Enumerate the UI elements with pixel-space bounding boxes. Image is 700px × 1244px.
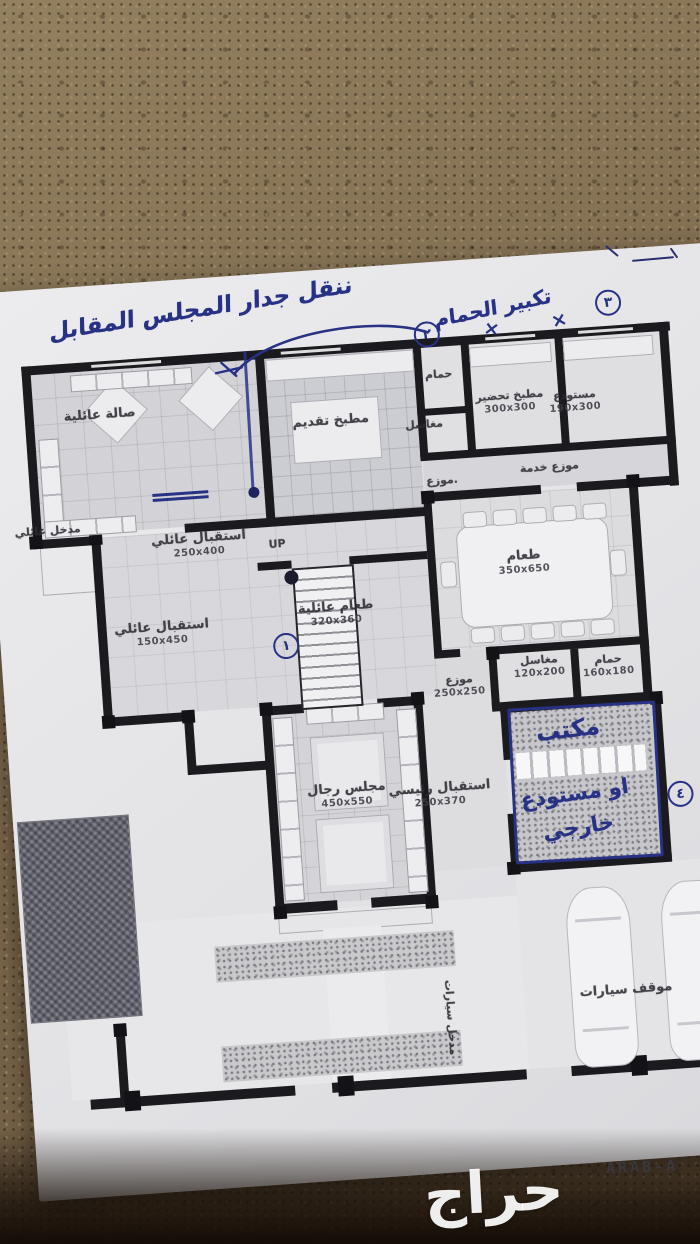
column <box>626 474 640 488</box>
x-mark: × <box>482 317 501 341</box>
wall <box>187 760 271 775</box>
chair <box>609 549 627 576</box>
floor-plan-paper: UP صالة عائلية مطبخ تقديم حمام مغاسل مطب… <box>0 242 700 1201</box>
chair <box>582 502 607 520</box>
majlis-rug <box>315 814 394 893</box>
column <box>259 702 273 716</box>
chair <box>462 511 487 529</box>
car-outline <box>564 885 640 1069</box>
chair <box>440 561 458 588</box>
chair <box>552 504 577 522</box>
chair <box>500 624 525 642</box>
column <box>102 715 116 729</box>
column <box>425 895 439 909</box>
chair <box>590 618 615 636</box>
circled-number-4: ٤ <box>667 780 695 808</box>
staircase <box>292 564 364 710</box>
entry-porch <box>40 544 99 596</box>
column <box>273 906 287 920</box>
side-garden-block <box>17 814 143 1023</box>
chair <box>492 509 517 527</box>
column <box>181 710 195 724</box>
chair <box>522 507 547 525</box>
gate-column <box>337 1075 354 1096</box>
column <box>113 1023 127 1037</box>
ink-arc <box>197 291 453 398</box>
circled-number-3: ٣ <box>594 289 622 317</box>
photo-bottom-shadow <box>0 1128 700 1244</box>
chair <box>560 620 585 638</box>
column <box>421 490 435 504</box>
haraj-watermark: حراج <box>422 1154 565 1229</box>
chair <box>530 622 555 640</box>
gate-column <box>124 1090 141 1111</box>
arab-stamp-text: ARAB-A <box>606 1157 679 1178</box>
chair <box>470 626 495 644</box>
